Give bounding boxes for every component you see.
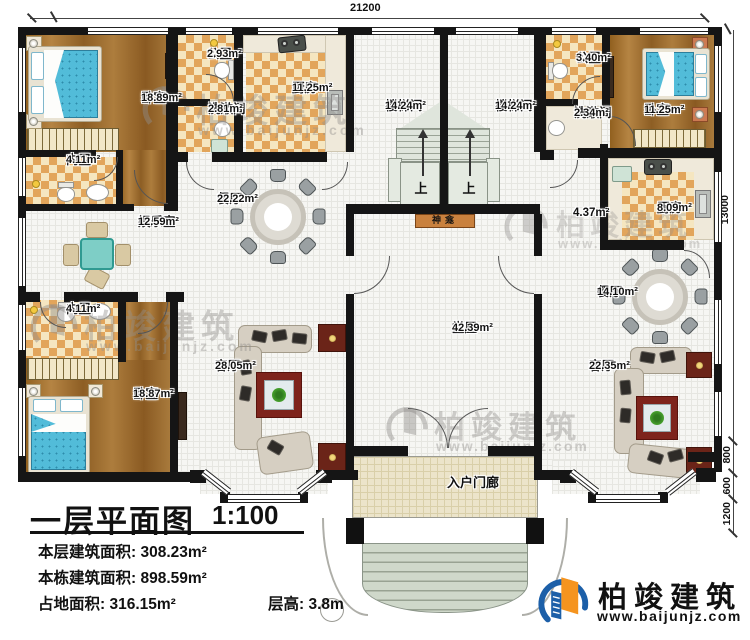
stove-burner-icon	[293, 39, 300, 46]
wall-segment	[346, 214, 354, 256]
wall-segment	[346, 294, 354, 446]
tv-cabinet	[686, 352, 712, 378]
chair-icon	[313, 209, 326, 225]
toilet-icon	[57, 187, 75, 202]
tv-icon	[178, 392, 187, 440]
pillow	[33, 399, 56, 412]
washing-machine-icon	[612, 166, 632, 182]
plant-icon	[272, 388, 286, 402]
wall-segment	[534, 214, 542, 256]
window	[18, 305, 26, 350]
window	[18, 48, 26, 112]
wall-segment	[118, 292, 126, 362]
dimension-label-right-lower: 800	[721, 446, 733, 464]
dimension-label-top: 21200	[350, 2, 381, 14]
page-title-scale: 1:100	[212, 500, 279, 531]
tv-cabinet	[318, 443, 346, 471]
wall-segment	[122, 204, 134, 211]
wall-segment	[18, 292, 40, 302]
porch-post	[526, 518, 544, 544]
dimension-label-right-lower: 1200	[721, 502, 733, 525]
lamp-icon	[553, 40, 561, 48]
wall-segment	[688, 452, 722, 462]
wall-segment	[164, 204, 178, 211]
dimension-label-right: 13000	[719, 195, 731, 224]
stair-up-label: 上	[414, 178, 427, 197]
toilet-icon	[552, 63, 568, 79]
window	[714, 300, 722, 364]
wall-segment	[348, 446, 408, 456]
lamp-icon	[695, 110, 704, 119]
dining-table	[250, 189, 306, 245]
plant-icon	[650, 411, 664, 425]
dimension-line-right	[733, 30, 734, 535]
window	[258, 27, 338, 35]
wall-segment	[540, 150, 554, 160]
lamp-icon	[210, 39, 218, 47]
wall-segment	[440, 33, 448, 214]
pillow-icon	[619, 380, 631, 396]
window	[552, 27, 596, 35]
kitchen-sink-icon	[695, 190, 711, 218]
wall-segment	[212, 152, 243, 162]
window	[714, 46, 722, 112]
floor-porch	[352, 456, 538, 518]
pillow	[695, 54, 707, 74]
chair-icon	[231, 209, 244, 225]
plate-icon	[646, 283, 674, 311]
title-underline	[30, 531, 304, 534]
entry-steps	[362, 543, 528, 613]
stove-burner-icon	[660, 163, 667, 170]
chair-icon	[63, 244, 79, 266]
wall-segment	[534, 33, 546, 152]
lamp-icon	[29, 387, 38, 396]
shrine-niche: 神龛	[415, 214, 475, 228]
stair-up-arrow-icon	[469, 132, 471, 176]
lamp-icon	[695, 40, 704, 49]
pillow-icon	[619, 408, 631, 424]
page-title: 一层平面图	[30, 496, 195, 541]
stat-floor-height: 层高: 3.8m	[268, 592, 344, 614]
plate-icon	[264, 203, 292, 231]
lamp-icon	[30, 306, 38, 314]
wall-segment	[346, 33, 354, 152]
window	[372, 27, 434, 35]
sink-icon	[548, 120, 565, 136]
sink-icon	[86, 184, 109, 201]
stat-footprint-area: 占地面积: 316.15m²	[38, 592, 176, 614]
lamp-icon	[91, 387, 100, 396]
chair-icon	[652, 331, 668, 344]
wall-segment	[178, 152, 188, 162]
watermark-url: www.baijunjz.com	[198, 122, 367, 138]
pillow	[31, 52, 44, 80]
chair-icon	[695, 289, 708, 305]
window	[18, 218, 26, 286]
stair-up-label: 上	[462, 178, 475, 197]
pillow-icon	[291, 332, 307, 345]
stove-burner-icon	[648, 163, 655, 170]
lamp-icon	[29, 39, 38, 48]
stair-up-arrow-icon	[422, 132, 424, 176]
sofa	[256, 430, 315, 475]
wall-segment	[170, 292, 178, 480]
chair-icon	[86, 222, 108, 238]
window	[186, 27, 232, 35]
window	[18, 158, 26, 196]
wall-segment	[578, 148, 714, 158]
window	[640, 27, 708, 35]
wall-segment	[696, 468, 716, 482]
chair-icon	[270, 251, 286, 264]
tv-cabinet	[318, 324, 346, 352]
lamp-icon	[29, 117, 38, 126]
chair-icon	[270, 169, 286, 182]
wall-segment	[488, 446, 540, 456]
washing-machine-icon	[211, 139, 228, 153]
dining-table	[632, 269, 688, 325]
wall-segment	[600, 240, 684, 250]
floor-plan-canvas: 柏竣建筑 www.baijunjz.com 柏竣建筑 www.baijunjz.…	[0, 0, 750, 640]
dimension-label-right-lower: 600	[721, 477, 733, 495]
porch-post	[346, 518, 364, 544]
wardrobe-bl	[27, 358, 119, 380]
dimension-line-top	[30, 18, 706, 19]
chair-icon	[115, 244, 131, 266]
wardrobe-tr	[633, 129, 706, 148]
window	[714, 392, 722, 436]
pillow	[60, 399, 83, 412]
bay-window	[596, 494, 660, 503]
wall-segment	[18, 204, 123, 211]
window	[88, 27, 168, 35]
dimension-tick	[724, 23, 731, 34]
stat-building-area: 本栋建筑面积: 898.59m²	[38, 566, 207, 588]
game-table	[80, 238, 114, 270]
wall-segment	[534, 294, 542, 446]
pillow	[695, 77, 707, 97]
wardrobe-tl	[27, 128, 119, 151]
wall-segment	[600, 144, 608, 250]
stove-burner-icon	[281, 40, 288, 47]
brand-logo-icon	[536, 570, 590, 630]
wall-segment	[602, 33, 610, 116]
pillow-icon	[639, 351, 656, 364]
stat-floor-area: 本层建筑面积: 308.23m²	[38, 540, 207, 562]
pillow	[31, 86, 44, 114]
brand-url: www.baijunjz.com	[597, 608, 742, 624]
window	[18, 388, 26, 456]
window	[456, 27, 518, 35]
lamp-icon	[32, 180, 40, 188]
wall-segment	[243, 152, 327, 162]
dimension-tick	[50, 11, 57, 22]
stair-landing	[486, 158, 500, 202]
wall-segment	[64, 292, 138, 302]
